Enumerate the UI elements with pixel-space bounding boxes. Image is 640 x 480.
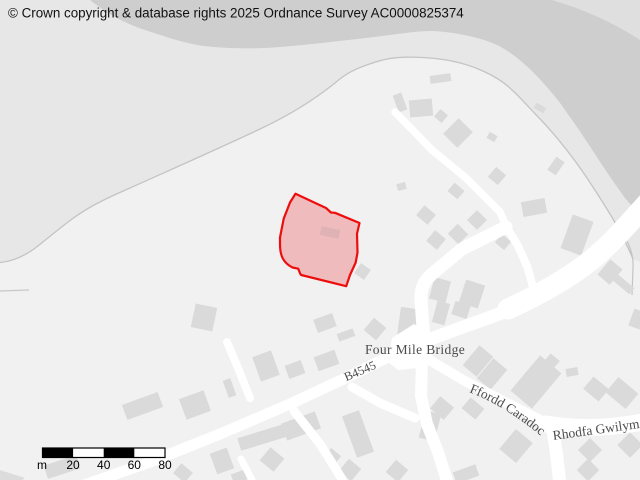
svg-text:Four Mile Bridge: Four Mile Bridge [365, 342, 465, 357]
svg-text:© Crown copyright & database r: © Crown copyright & database rights 2025… [8, 6, 464, 21]
svg-text:60: 60 [128, 458, 142, 472]
svg-text:20: 20 [66, 458, 80, 472]
svg-text:80: 80 [158, 458, 172, 472]
svg-text:40: 40 [97, 458, 111, 472]
svg-text:m: m [37, 458, 47, 472]
